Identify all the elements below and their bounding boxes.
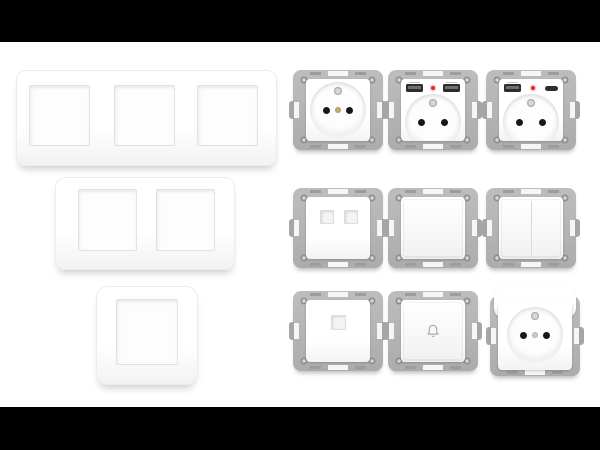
module-socket-dual-usb-a bbox=[388, 70, 478, 150]
screw-icon bbox=[527, 99, 535, 107]
usb-row bbox=[504, 82, 558, 94]
usb-a-port-icon bbox=[406, 84, 423, 92]
socket-hole-left bbox=[520, 332, 527, 339]
usb-a-port-icon bbox=[504, 84, 521, 92]
socket-hole-left bbox=[418, 119, 425, 126]
frame-window bbox=[29, 85, 90, 146]
socket-faceplate bbox=[306, 79, 370, 141]
usb-c-port-icon bbox=[545, 86, 558, 91]
frame-window bbox=[78, 189, 137, 251]
frame-window bbox=[116, 299, 178, 365]
earth-pin bbox=[532, 332, 538, 338]
outlet-faceplate bbox=[306, 300, 370, 362]
module-double-switch bbox=[486, 188, 576, 268]
outlet-faceplate bbox=[306, 197, 370, 259]
charging-led-icon bbox=[431, 86, 435, 90]
socket-hole-right bbox=[543, 332, 550, 339]
bell-icon bbox=[424, 322, 442, 340]
module-rj45-outlet bbox=[293, 291, 383, 371]
module-socket-usb-a-c bbox=[486, 70, 576, 150]
switch-faceplate bbox=[401, 197, 465, 259]
double-gang-frame bbox=[55, 177, 235, 270]
socket-faceplate bbox=[499, 79, 563, 141]
module-socket-with-cover bbox=[490, 296, 580, 376]
rj45-port bbox=[331, 315, 346, 330]
letterbox-bottom bbox=[0, 407, 600, 450]
letterbox-top bbox=[0, 0, 600, 42]
frame-window bbox=[197, 85, 258, 146]
photo-background bbox=[0, 42, 600, 407]
earth-pin bbox=[335, 107, 341, 113]
socket-hole-left bbox=[323, 107, 330, 114]
module-doorbell-button bbox=[388, 291, 478, 371]
button-faceplate bbox=[401, 300, 465, 362]
usb-row bbox=[406, 82, 460, 94]
socket-hole-right bbox=[539, 119, 546, 126]
socket-recess bbox=[405, 94, 461, 141]
screw-icon bbox=[531, 312, 539, 320]
socket-hole-left bbox=[516, 119, 523, 126]
module-french-socket bbox=[293, 70, 383, 150]
socket-faceplate bbox=[498, 302, 572, 370]
charging-led-icon bbox=[531, 86, 535, 90]
screw-icon bbox=[429, 99, 437, 107]
push-button bbox=[403, 302, 463, 360]
product-photo bbox=[0, 0, 600, 450]
socket-recess bbox=[503, 94, 559, 141]
socket-faceplate bbox=[401, 79, 465, 141]
module-single-switch bbox=[388, 188, 478, 268]
module-double-data-outlet bbox=[293, 188, 383, 268]
socket-hole-right bbox=[441, 119, 448, 126]
data-port bbox=[344, 210, 358, 224]
usb-a-port-icon bbox=[443, 84, 460, 92]
screw-icon bbox=[334, 87, 342, 95]
switch-faceplate bbox=[499, 197, 563, 259]
frame-window bbox=[114, 85, 175, 146]
socket-recess bbox=[310, 82, 366, 138]
data-port bbox=[320, 210, 334, 224]
triple-gang-frame bbox=[16, 70, 277, 166]
socket-hole-right bbox=[346, 107, 353, 114]
socket-recess bbox=[507, 307, 563, 363]
single-gang-frame bbox=[96, 286, 198, 385]
frame-window bbox=[156, 189, 215, 251]
switch-rocker bbox=[403, 199, 463, 257]
double-switch-rocker bbox=[501, 199, 561, 257]
